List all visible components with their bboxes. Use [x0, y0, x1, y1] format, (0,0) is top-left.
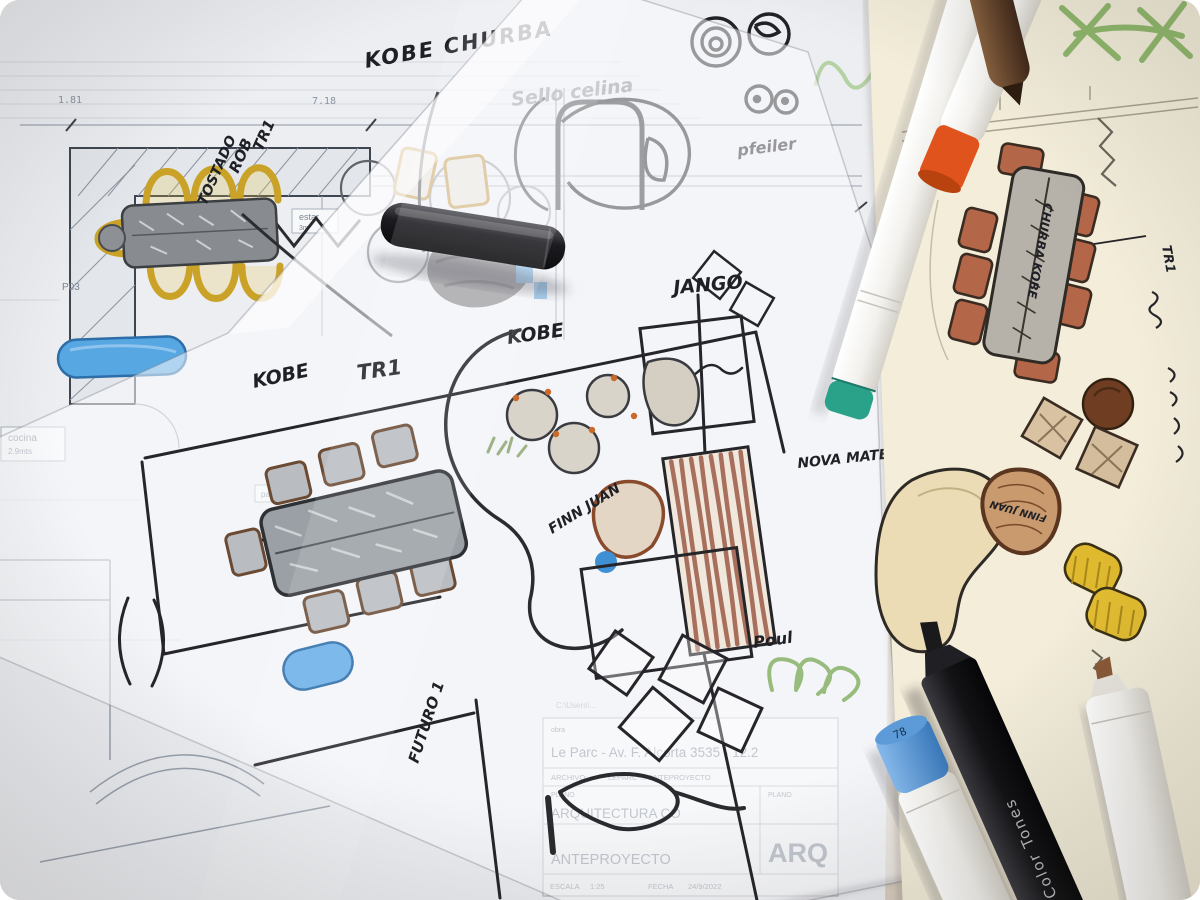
sketch-photo-canvas: 1.81 7.18 estar 3m cocina 2.9mts	[0, 0, 1200, 900]
photo-of-floorplan-sketches: 1.81 7.18 estar 3m cocina 2.9mts	[0, 0, 1200, 900]
vignette	[0, 0, 1200, 900]
